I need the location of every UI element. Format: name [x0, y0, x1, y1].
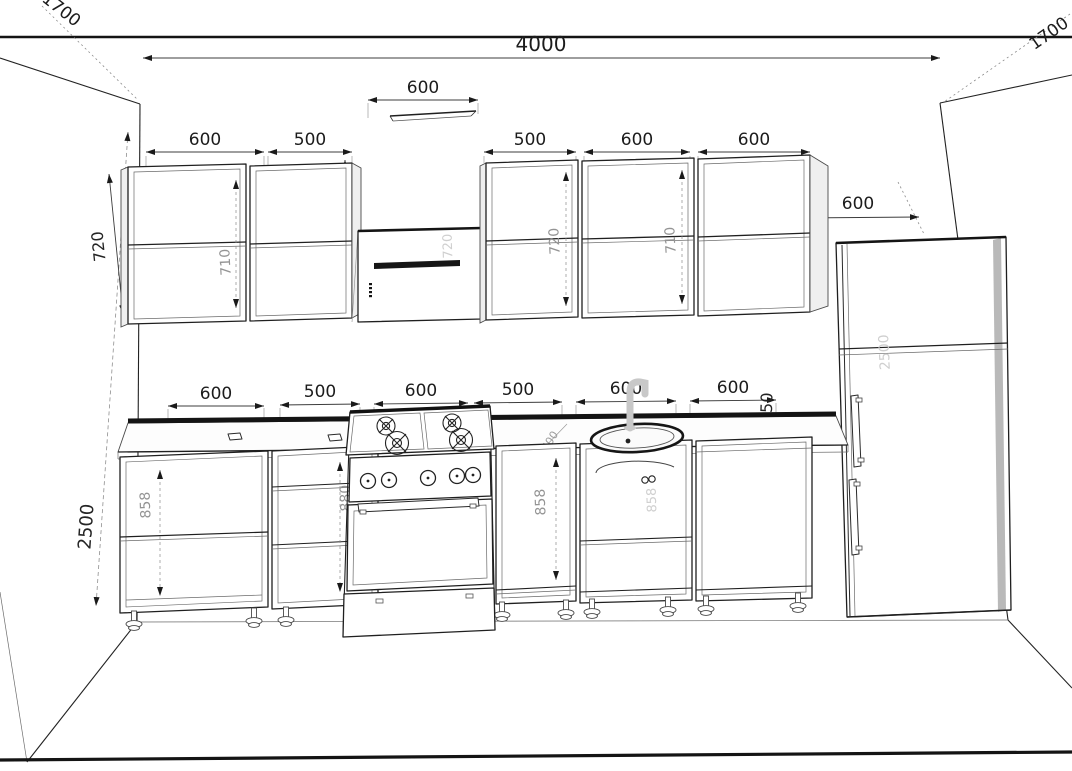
- dim-upper-left-2: 500: [294, 130, 326, 150]
- label-hood-height: 720: [441, 233, 457, 258]
- label-base-cab5-height: 858: [645, 487, 661, 512]
- dim-upper-left-1: 600: [189, 130, 221, 150]
- label-fridge-height: 2500: [876, 334, 894, 370]
- kitchen-elevation-drawing: 1700 1700 4000 2500 600 600 500 50: [0, 0, 1072, 771]
- upper-cabinet-3: 720: [480, 160, 578, 323]
- refrigerator: 2500: [836, 237, 1011, 617]
- dim-overall-width-value: 4000: [516, 32, 567, 56]
- dim-upper-right-2: 600: [621, 130, 653, 150]
- base-cabinet-6: [696, 437, 812, 601]
- stove-drawer: [343, 588, 495, 637]
- base-cabinet-sink: 858: [580, 440, 692, 603]
- label-base-cab1-height: 858: [138, 492, 155, 519]
- label-upper-cab4-height: 710: [662, 226, 679, 254]
- gas-stove: [343, 406, 495, 637]
- dim-base-6: 600: [717, 378, 749, 398]
- dim-fridge-width-value: 600: [842, 194, 874, 214]
- dim-hood-width-value: 600: [407, 78, 439, 98]
- upper-cabinet-5: [698, 155, 828, 316]
- dim-base-1: 600: [200, 384, 232, 404]
- drawing-canvas: 1700 1700 4000 2500 600 600 500 50: [0, 0, 1072, 771]
- handle-symbol-1: [228, 433, 242, 440]
- stove-control-panel: [349, 452, 491, 502]
- sink-drain: [626, 439, 631, 444]
- dimension-upper-left-row: 600 500: [146, 130, 352, 167]
- dim-base-2: 500: [304, 382, 336, 402]
- base-cabinet-4: 858: [496, 443, 576, 604]
- dim-upper-right-1: 500: [514, 130, 546, 150]
- dim-right-return-value: 1700: [1026, 13, 1072, 54]
- wall-vent-slot: [390, 111, 476, 121]
- cooker-hood: 720: [352, 228, 489, 322]
- dim-base-3: 600: [405, 381, 437, 401]
- label-upper-cab1-height: 710: [217, 248, 234, 276]
- stove-cooktop: [346, 406, 494, 455]
- dim-720-value: 720: [87, 230, 109, 262]
- upper-cabinet-2: [250, 163, 361, 321]
- upper-cabinet-1: 710: [121, 164, 246, 327]
- dim-left-return-value: 1700: [38, 0, 84, 31]
- oven-door: [347, 498, 493, 591]
- faucet-base: [624, 425, 636, 430]
- label-upper-cab3-height: 720: [546, 227, 563, 255]
- base-cabinet-1: 858: [120, 451, 268, 613]
- label-base-cab4-height: 858: [533, 489, 550, 516]
- dimension-upper-cabinet-height: 720: [87, 174, 123, 314]
- upper-cabinet-4: 710: [582, 158, 694, 318]
- dimension-left-return: 1700: [38, 0, 138, 100]
- dim-wall-height-value: 2500: [74, 503, 98, 550]
- dim-base-4: 500: [502, 380, 534, 400]
- handle-symbol-2: [328, 434, 342, 441]
- dim-upper-right-3: 600: [738, 130, 770, 150]
